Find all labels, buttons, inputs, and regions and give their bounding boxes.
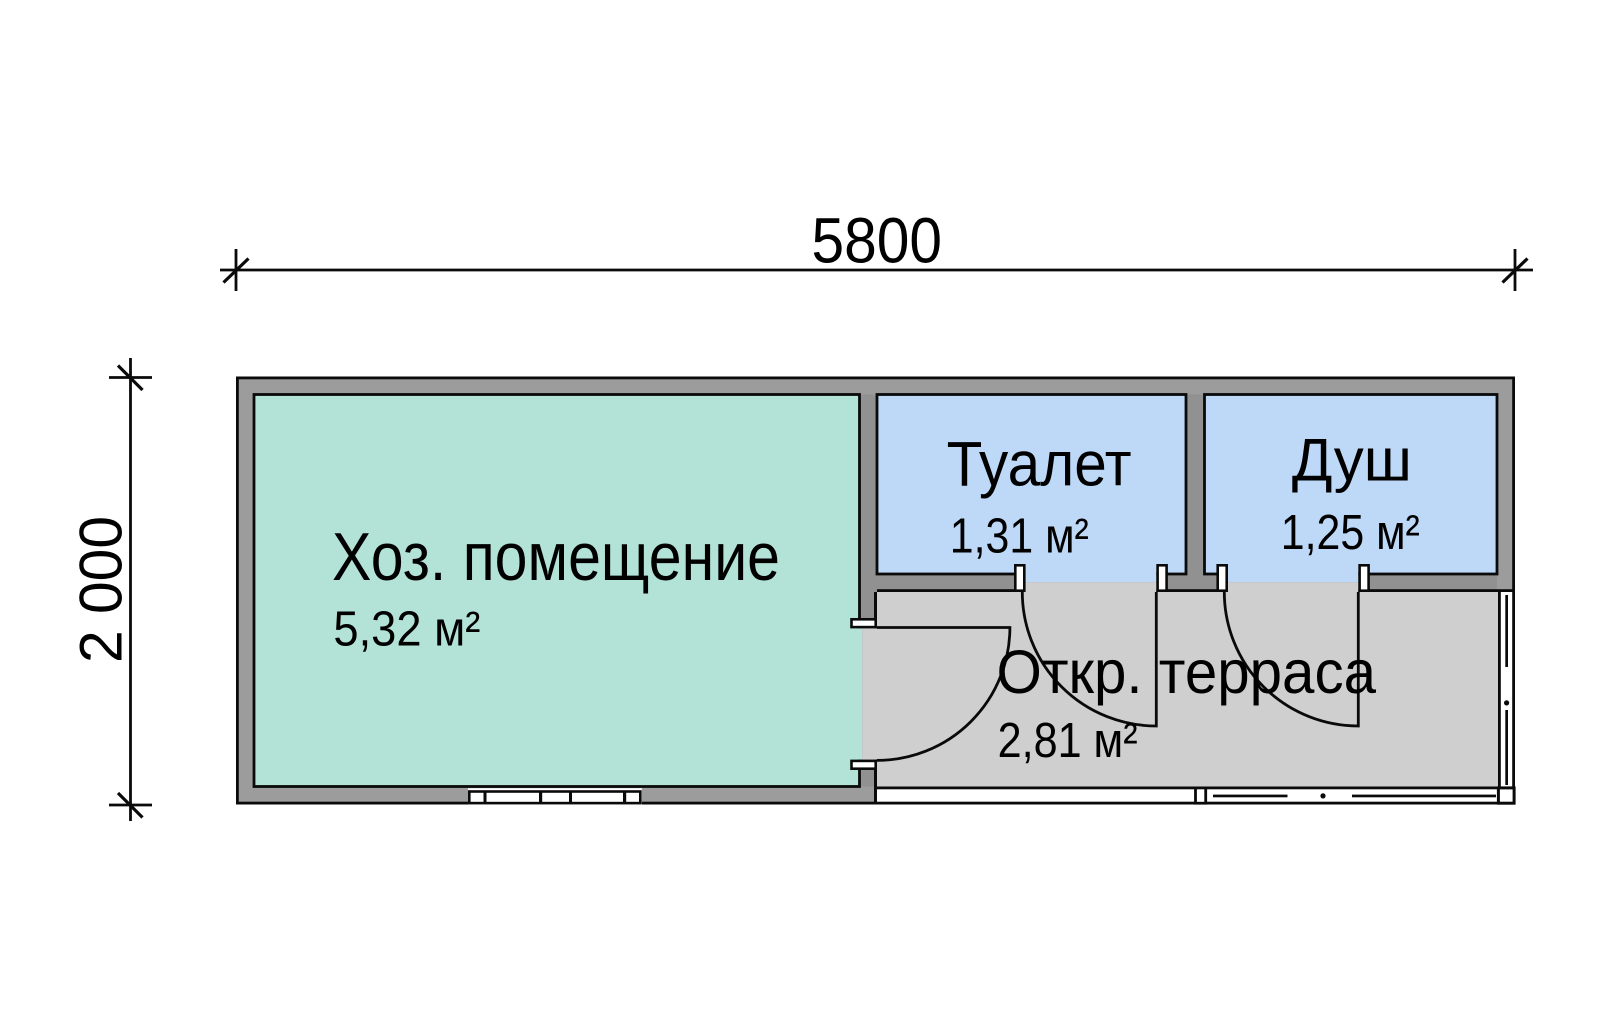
svg-text:2 000: 2 000 [68,516,135,663]
svg-text:Откр. терраса: Откр. терраса [997,638,1377,706]
svg-text:Туалет: Туалет [947,430,1132,500]
svg-text:Душ: Душ [1292,427,1412,494]
svg-text:1,31 м²: 1,31 м² [950,510,1089,564]
svg-text:1,25 м²: 1,25 м² [1281,506,1420,560]
svg-text:5800: 5800 [812,205,943,277]
svg-text:2,81 м²: 2,81 м² [998,714,1138,768]
svg-text:5,32 м²: 5,32 м² [333,603,480,657]
svg-text:Хоз. помещение: Хоз. помещение [332,519,780,595]
